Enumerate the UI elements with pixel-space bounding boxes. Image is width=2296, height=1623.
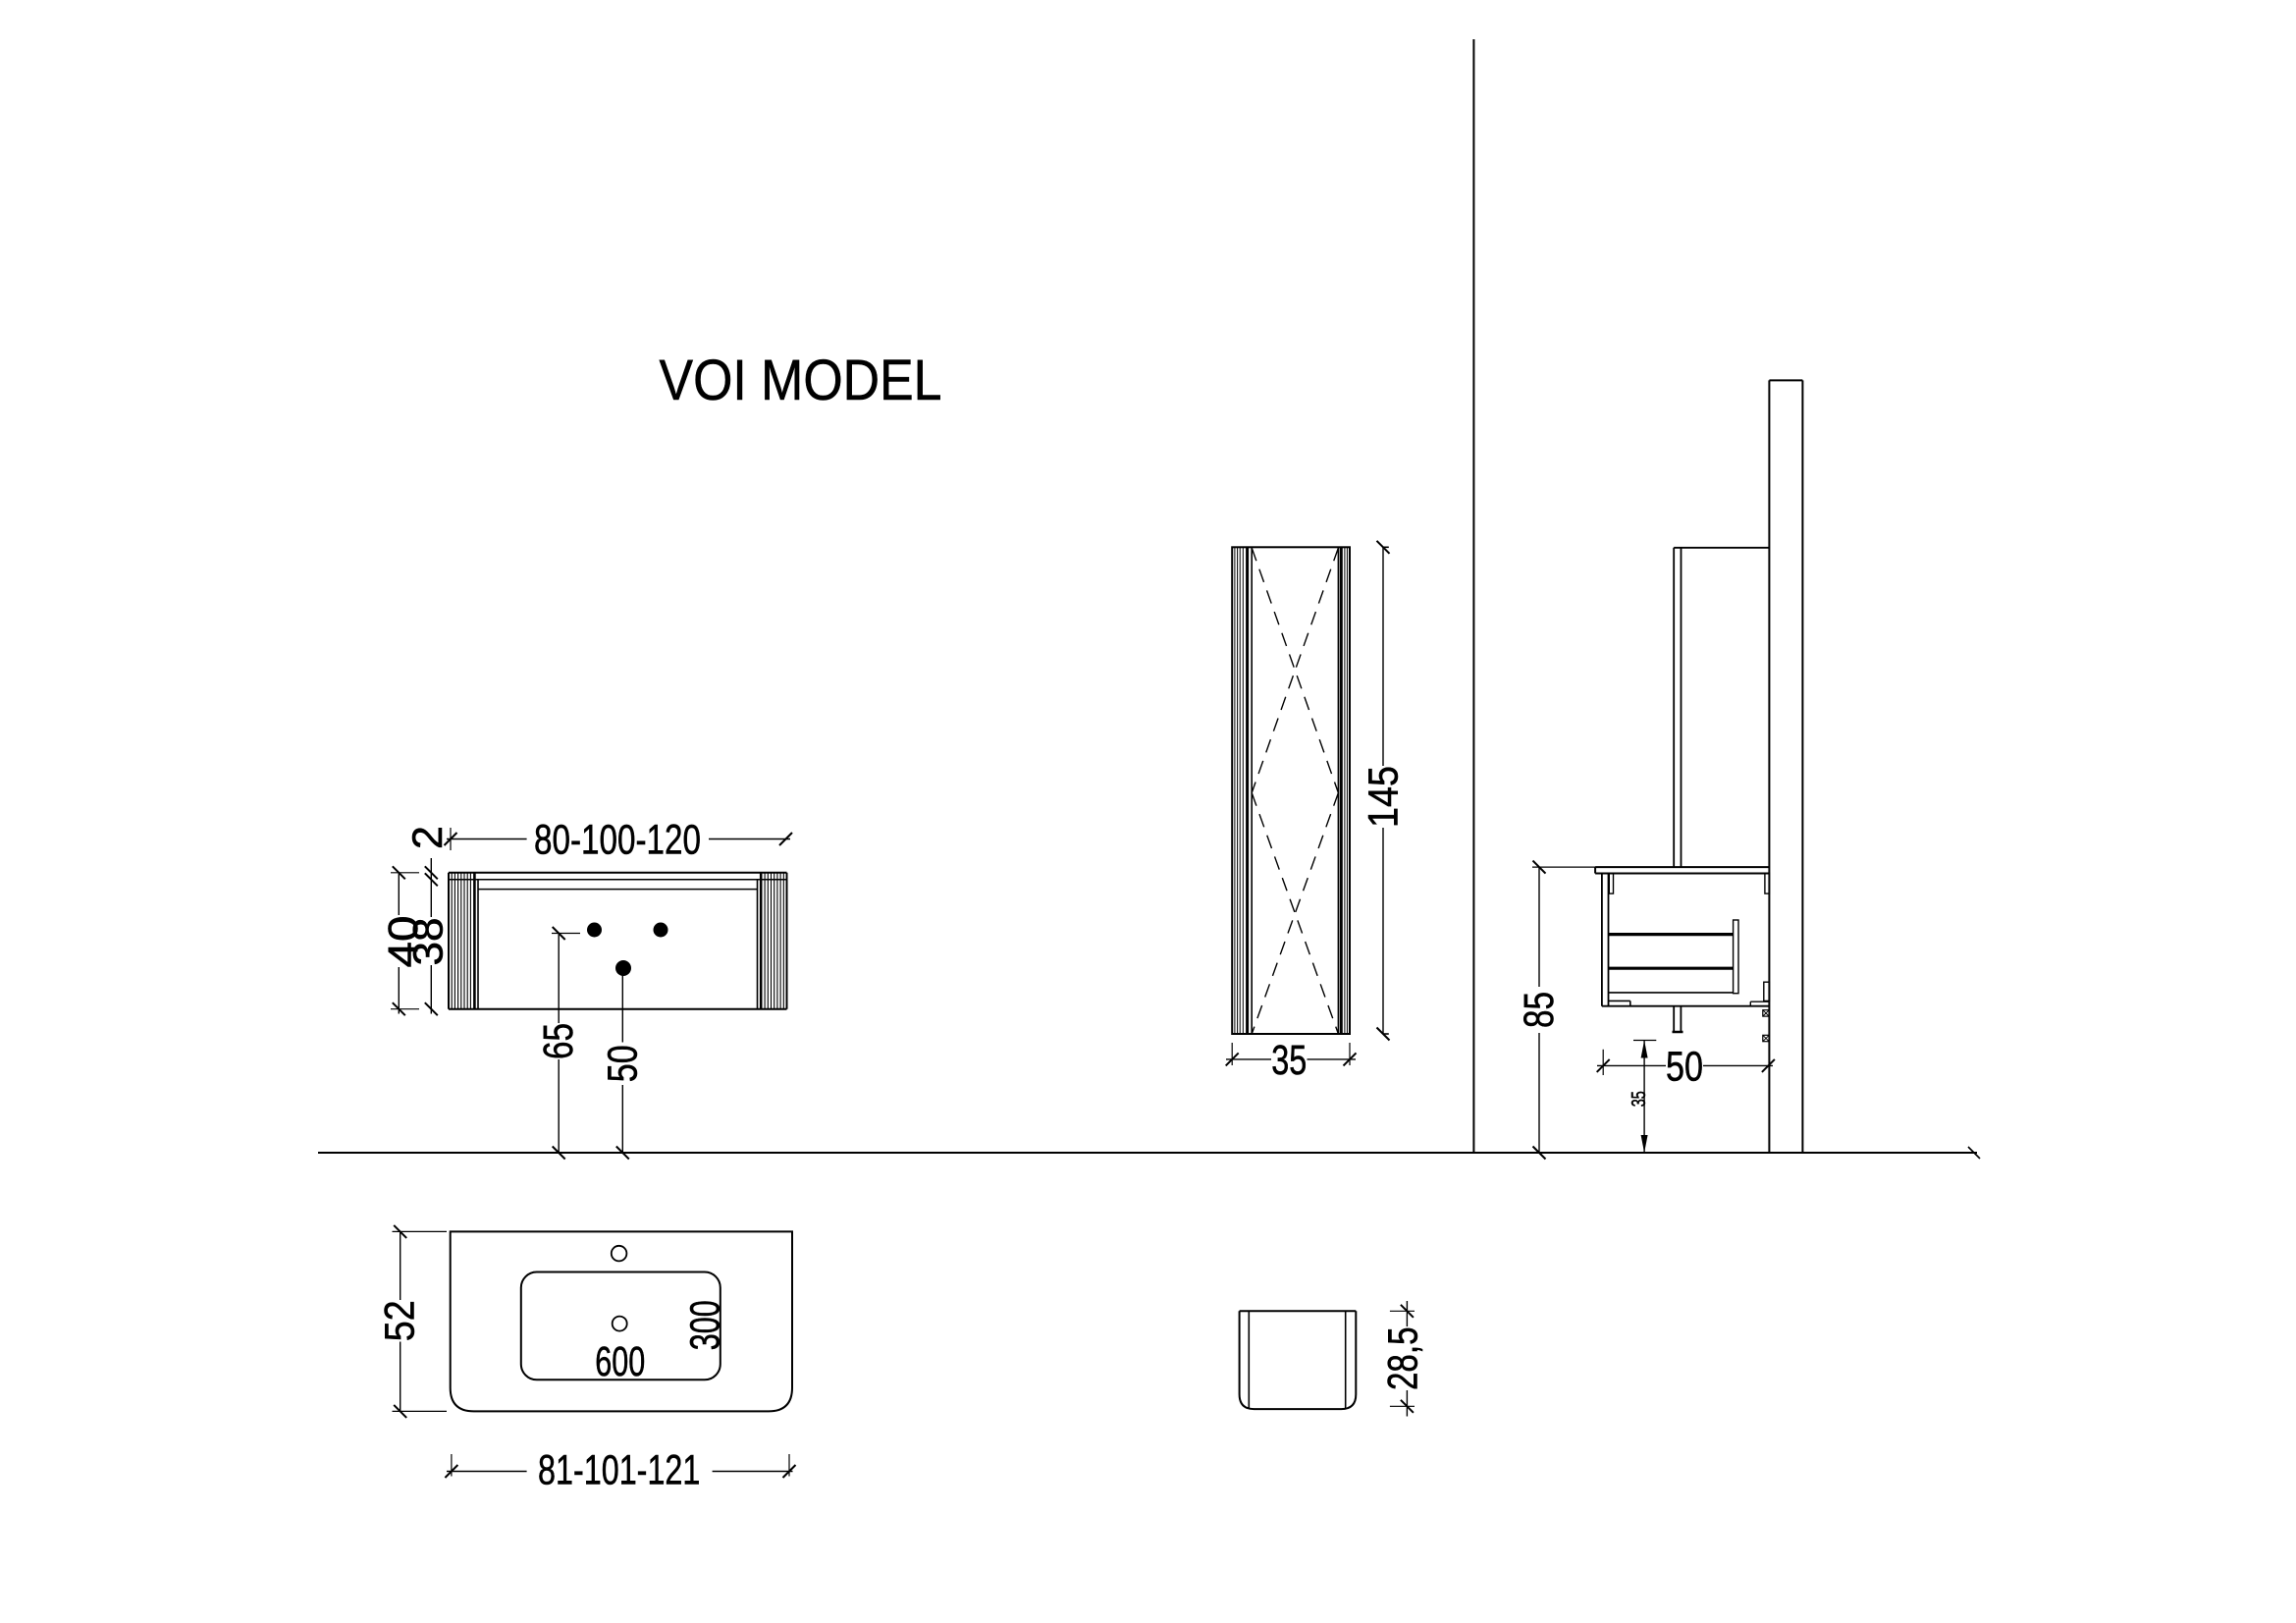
svg-text:600: 600	[595, 1338, 645, 1385]
svg-text:VOI MODEL: VOI MODEL	[660, 349, 942, 412]
svg-text:65: 65	[535, 1023, 582, 1059]
svg-text:35: 35	[1271, 1037, 1307, 1084]
svg-text:50: 50	[600, 1045, 647, 1082]
svg-text:38: 38	[405, 918, 453, 966]
svg-text:85: 85	[1516, 992, 1563, 1028]
svg-text:2: 2	[404, 826, 452, 849]
svg-text:28,5: 28,5	[1380, 1326, 1427, 1390]
svg-text:300: 300	[682, 1300, 729, 1350]
svg-text:81-101-121: 81-101-121	[538, 1447, 700, 1494]
svg-text:52: 52	[376, 1300, 423, 1341]
svg-text:50: 50	[1666, 1043, 1703, 1090]
svg-text:145: 145	[1361, 766, 1408, 828]
svg-text:35: 35	[1629, 1091, 1650, 1107]
svg-text:80-100-120: 80-100-120	[534, 817, 701, 864]
